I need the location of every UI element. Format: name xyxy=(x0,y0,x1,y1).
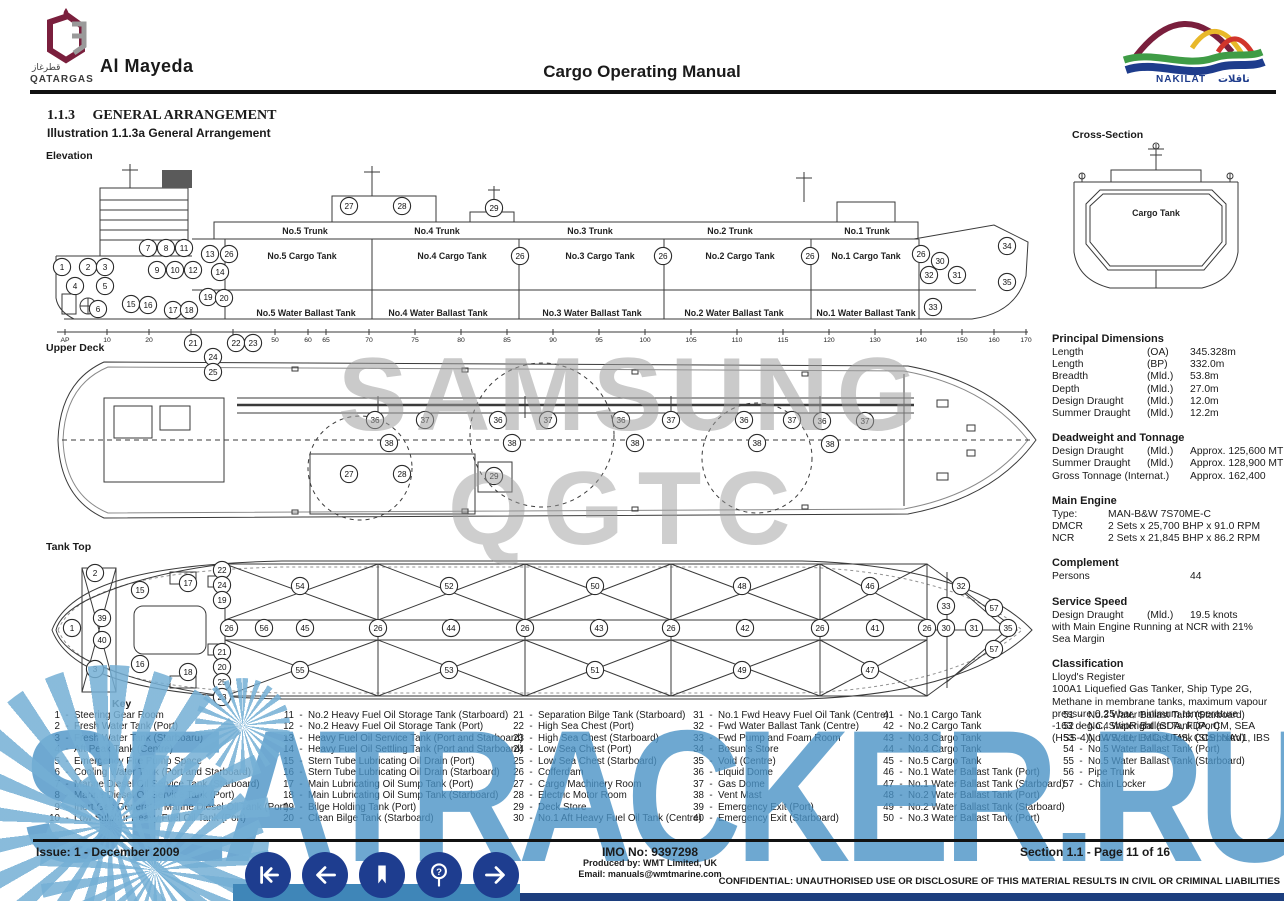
callout-10: 10 xyxy=(166,261,183,278)
key-item-label: Emergency Exit (Starboard) xyxy=(718,813,839,824)
trunk-label: No.4 Trunk xyxy=(414,226,460,236)
key-item-number: 34 xyxy=(686,744,704,755)
key-item-dash: - xyxy=(60,779,74,790)
callout-14: 14 xyxy=(211,263,228,280)
callout-33: 33 xyxy=(937,597,954,614)
key-item: 34-Bosun's Store xyxy=(686,744,889,755)
callout-15: 15 xyxy=(131,581,148,598)
key-item-dash: - xyxy=(704,756,718,767)
spec-cell: Approx. 125,600 MT xyxy=(1190,446,1283,458)
key-item-label: No.2 Cargo Tank xyxy=(908,721,981,732)
svg-text:32: 32 xyxy=(924,271,934,280)
specs-panel: Principal DimensionsLength(OA)345.328mLe… xyxy=(1052,333,1280,757)
bookmark-button[interactable] xyxy=(359,852,405,898)
callout-53: 53 xyxy=(440,661,457,678)
ballast-tank-label: No.1 Water Ballast Tank xyxy=(816,308,915,318)
svg-text:18: 18 xyxy=(184,306,194,315)
key-item-number: 9 xyxy=(42,802,60,813)
callout-13: 13 xyxy=(201,245,218,262)
spec-cell: (OA) xyxy=(1147,347,1190,359)
key-item-number: 47 xyxy=(876,779,894,790)
section-title: GENERAL ARRANGEMENT xyxy=(93,108,277,123)
cross-section-diagram: Cargo Tank xyxy=(1056,140,1256,325)
svg-text:33: 33 xyxy=(941,602,951,611)
callout-19: 19 xyxy=(213,591,230,608)
key-item-number: 17 xyxy=(276,779,294,790)
key-item-number: 36 xyxy=(686,767,704,778)
key-item: 38-Vent Mast xyxy=(686,790,889,801)
svg-text:15: 15 xyxy=(135,586,145,595)
key-item-dash: - xyxy=(60,790,74,801)
svg-text:23: 23 xyxy=(248,339,258,348)
callout-23: 23 xyxy=(213,688,230,705)
svg-text:21: 21 xyxy=(217,648,227,657)
key-item-dash: - xyxy=(60,721,74,732)
key-item: 51-No.3 Water Ballast Tank (Starboard) xyxy=(1056,710,1245,721)
help-button[interactable]: ? xyxy=(416,852,462,898)
spec-note: Methane in membrane tanks, maximum vapou… xyxy=(1052,697,1280,709)
key-item-dash: - xyxy=(704,721,718,732)
svg-text:32: 32 xyxy=(956,582,966,591)
key-item-number: 46 xyxy=(876,767,894,778)
key-item-label: Main Lubricating Oil Sump Tank (Port) xyxy=(308,779,473,790)
svg-text:42: 42 xyxy=(740,624,750,633)
svg-text:26: 26 xyxy=(515,252,525,261)
key-item-number: 23 xyxy=(506,733,524,744)
callout-37: 37 xyxy=(416,411,433,428)
svg-text:54: 54 xyxy=(295,582,305,591)
callout-4: 4 xyxy=(66,277,83,294)
svg-text:47: 47 xyxy=(865,666,875,675)
key-item-label: No.4 Water Ballast Tank (Starboard) xyxy=(1088,733,1245,744)
key-item-label: No.3 Cargo Tank xyxy=(908,733,981,744)
svg-text:28: 28 xyxy=(397,202,407,211)
svg-text:26: 26 xyxy=(373,624,383,633)
key-column: 1-Steering Gear Room2-Fresh Water Tank (… xyxy=(42,710,289,825)
spec-cell: 2 Sets x 25,700 BHP x 91.0 RPM xyxy=(1108,521,1280,533)
key-item-dash: - xyxy=(1074,779,1088,790)
key-item-dash: - xyxy=(524,756,538,767)
key-item-dash: - xyxy=(60,744,74,755)
callout-38: 38 xyxy=(380,434,397,451)
spec-cell: Design Draught xyxy=(1052,610,1147,622)
callout-31: 31 xyxy=(965,619,982,636)
key-item-number: 35 xyxy=(686,756,704,767)
callout-49: 49 xyxy=(733,661,750,678)
svg-text:38: 38 xyxy=(825,440,835,449)
callout-3: 3 xyxy=(96,258,113,275)
cargo-tank-label: No.2 Cargo Tank xyxy=(705,251,774,261)
trunk-label: No.3 Trunk xyxy=(567,226,613,236)
key-column: 31-No.1 Fwd Heavy Fuel Oil Tank (Centre)… xyxy=(686,710,889,825)
svg-text:41: 41 xyxy=(870,624,880,633)
spec-cell: (Mld.) xyxy=(1147,610,1190,622)
key-item-number: 24 xyxy=(506,744,524,755)
key-item: 43-No.3 Cargo Tank xyxy=(876,733,1065,744)
spec-row: Design Draught(Mld.)Approx. 125,600 MT xyxy=(1052,446,1280,458)
svg-text:34: 34 xyxy=(1002,242,1012,251)
key-item-label: Bosun's Store xyxy=(718,744,779,755)
svg-text:57: 57 xyxy=(989,645,999,654)
svg-text:20: 20 xyxy=(219,294,229,303)
elevation-diagram: No.5 TrunkNo.4 TrunkNo.3 TrunkNo.2 Trunk… xyxy=(42,158,1042,344)
svg-text:17: 17 xyxy=(168,306,178,315)
callout-16: 16 xyxy=(139,296,156,313)
key-item-dash: - xyxy=(894,813,908,824)
key-item: 52-No.4 Water Ballast Tank (Port) xyxy=(1056,721,1245,732)
key-item-dash: - xyxy=(704,744,718,755)
callout-27: 27 xyxy=(340,197,357,214)
key-item: 10-Low Sulphur Heavy Fuel Oil Tank (Port… xyxy=(42,813,289,824)
key-item-number: 20 xyxy=(276,813,294,824)
svg-text:51: 51 xyxy=(590,666,600,675)
key-item-dash: - xyxy=(1074,756,1088,767)
callout-6: 6 xyxy=(89,300,106,317)
key-item-number: 7 xyxy=(42,779,60,790)
svg-text:36: 36 xyxy=(739,416,749,425)
cross-section-tank-label: Cargo Tank xyxy=(1132,208,1180,218)
key-item-label: Cooling Water Tank (Port and Starboard) xyxy=(74,767,251,778)
key-item: 14-Heavy Fuel Oil Settling Tank (Port an… xyxy=(276,744,523,755)
svg-text:52: 52 xyxy=(444,582,454,591)
spec-cell: (Mld.) xyxy=(1147,371,1190,383)
svg-text:36: 36 xyxy=(817,417,827,426)
key-item-number: 50 xyxy=(876,813,894,824)
previous-page-button[interactable] xyxy=(302,852,348,898)
svg-text:24: 24 xyxy=(208,353,218,362)
svg-text:48: 48 xyxy=(737,582,747,591)
spec-block: Principal DimensionsLength(OA)345.328mLe… xyxy=(1052,333,1280,420)
spec-cell: 12.2m xyxy=(1190,408,1280,420)
callout-34: 34 xyxy=(998,237,1015,254)
spec-cell: Length xyxy=(1052,359,1147,371)
svg-text:37: 37 xyxy=(787,416,797,425)
imo-number: IMO No: 9397298 xyxy=(560,845,740,859)
svg-text:19: 19 xyxy=(217,596,227,605)
key-item-label: Marine Diesel Oil Service Tank (Starboar… xyxy=(74,779,260,790)
key-item: 49-No.2 Water Ballast Tank (Starboard) xyxy=(876,802,1065,813)
nakilat-wordmark: NAKILAT xyxy=(1156,74,1206,85)
section-page-label: Section 1.1 - Page 11 of 16 xyxy=(1020,845,1278,859)
callout-57: 57 xyxy=(985,640,1002,657)
svg-text:38: 38 xyxy=(507,439,517,448)
callout-30: 30 xyxy=(931,252,948,269)
svg-text:22: 22 xyxy=(231,339,241,348)
callout-5: 5 xyxy=(96,277,113,294)
trunk-label: No.1 Trunk xyxy=(844,226,890,236)
help-icon: ? xyxy=(422,858,456,892)
svg-text:29: 29 xyxy=(489,204,499,213)
key-item-dash: - xyxy=(294,802,308,813)
key-item: 4-Aft Peak Tank (Centre) xyxy=(42,744,289,755)
callout-29: 29 xyxy=(485,199,502,216)
key-item-label: Aft Peak Tank (Centre) xyxy=(74,744,173,755)
callout-27: 27 xyxy=(340,465,357,482)
key-item-dash: - xyxy=(1074,721,1088,732)
spec-cell: 12.0m xyxy=(1190,396,1280,408)
produced-by-line: Produced by: WMT Limited, UK xyxy=(548,858,752,869)
key-item: 54-No.5 Water Ballast Tank (Port) xyxy=(1056,744,1245,755)
callout-9: 9 xyxy=(148,261,165,278)
svg-text:37: 37 xyxy=(543,416,553,425)
svg-text:1: 1 xyxy=(70,624,75,633)
svg-text:27: 27 xyxy=(344,202,354,211)
spec-cell: 44 xyxy=(1190,571,1280,583)
spec-title: Principal Dimensions xyxy=(1052,333,1280,345)
key-item-number: 10 xyxy=(42,813,60,824)
key-item: 17-Main Lubricating Oil Sump Tank (Port) xyxy=(276,779,523,790)
svg-text:26: 26 xyxy=(922,624,932,633)
callout-50: 50 xyxy=(586,577,603,594)
key-item: 27-Cargo Machinery Room xyxy=(506,779,702,790)
spec-cell: (Mld.) xyxy=(1147,408,1190,420)
trunk-label: No.5 Trunk xyxy=(282,226,328,236)
spec-cell: 27.0m xyxy=(1190,384,1280,396)
callout-42: 42 xyxy=(736,619,753,636)
key-item-number: 27 xyxy=(506,779,524,790)
svg-text:14: 14 xyxy=(215,268,225,277)
svg-text:4: 4 xyxy=(73,282,78,291)
key-item-dash: - xyxy=(524,721,538,732)
svg-text:37: 37 xyxy=(860,417,870,426)
svg-text:43: 43 xyxy=(594,624,604,633)
key-item-label: Liquid Dome xyxy=(718,767,773,778)
callout-43: 43 xyxy=(590,619,607,636)
key-item-dash: - xyxy=(704,790,718,801)
key-item-dash: - xyxy=(894,733,908,744)
spec-note: Sea Margin xyxy=(1052,634,1280,646)
callout-2: 2 xyxy=(86,564,103,581)
key-item-dash: - xyxy=(524,779,538,790)
key-item: 56-Pipe Trunk xyxy=(1056,767,1245,778)
key-item: 6-Cooling Water Tank (Port and Starboard… xyxy=(42,767,289,778)
callout-36: 36 xyxy=(366,411,383,428)
nav-toolbar: ? xyxy=(245,852,519,898)
key-item-dash: - xyxy=(894,756,908,767)
tank-top-section-label: Tank Top xyxy=(46,541,91,553)
callout-26: 26 xyxy=(369,619,386,636)
svg-text:38: 38 xyxy=(630,439,640,448)
key-item-number: 54 xyxy=(1056,744,1074,755)
next-page-icon xyxy=(479,858,513,892)
footer-rule xyxy=(33,839,1284,842)
svg-text:44: 44 xyxy=(446,624,456,633)
key-item-label: Gas Dome xyxy=(718,779,765,790)
callout-38: 38 xyxy=(821,435,838,452)
callout-26: 26 xyxy=(912,245,929,262)
key-item-label: No.3 Water Ballast Tank (Port) xyxy=(908,813,1040,824)
spec-cell: (Mld.) xyxy=(1147,396,1190,408)
key-item-number: 53 xyxy=(1056,733,1074,744)
callout-3: 3 xyxy=(86,660,103,677)
svg-text:7: 7 xyxy=(146,244,151,253)
spec-cell: Design Draught xyxy=(1052,446,1147,458)
callout-26: 26 xyxy=(918,619,935,636)
key-item-dash: - xyxy=(1074,767,1088,778)
key-item: 22-High Sea Chest (Port) xyxy=(506,721,702,732)
key-item-dash: - xyxy=(704,733,718,744)
key-item: 7-Marine Diesel Oil Service Tank (Starbo… xyxy=(42,779,289,790)
key-item-label: Cargo Machinery Room xyxy=(538,779,641,790)
key-item-label: Emergency Exit (Port) xyxy=(718,802,814,813)
svg-text:2: 2 xyxy=(93,569,98,578)
callout-20: 20 xyxy=(215,289,232,306)
callout-1: 1 xyxy=(63,619,80,636)
key-item-number: 14 xyxy=(276,744,294,755)
key-item: 47-No.1 Water Ballast Tank (Starboard) xyxy=(876,779,1065,790)
key-item-dash: - xyxy=(294,790,308,801)
callout-52: 52 xyxy=(440,577,457,594)
svg-text:12: 12 xyxy=(188,266,198,275)
spec-row: DMCR2 Sets x 25,700 BHP x 91.0 RPM xyxy=(1052,521,1280,533)
key-item-number: 40 xyxy=(686,813,704,824)
section-heading: 1.1.3 GENERAL ARRANGEMENT xyxy=(47,108,276,124)
spec-row: Length(OA)345.328m xyxy=(1052,347,1280,359)
upper-deck-section-label: Upper Deck xyxy=(46,342,104,354)
spec-cell: MAN-B&W 7S70ME-C xyxy=(1108,509,1280,521)
key-item-dash: - xyxy=(60,802,74,813)
key-item-label: Stern Tube Lubricating Oil Drain (Port) xyxy=(308,756,475,767)
spec-title: Main Engine xyxy=(1052,495,1280,507)
key-item-label: Inert Gas Generator Marine Diesel Oil Ta… xyxy=(74,802,289,813)
key-item-number: 37 xyxy=(686,779,704,790)
spec-cell: (Mld.) xyxy=(1147,458,1190,470)
callout-16: 16 xyxy=(131,655,148,672)
key-item-label: Stern Tube Lubricating Oil Drain (Starbo… xyxy=(308,767,500,778)
callout-22: 22 xyxy=(227,334,244,351)
spec-title: Classification xyxy=(1052,658,1280,670)
key-item-label: Heavy Fuel Oil Service Tank (Port and St… xyxy=(308,733,523,744)
key-item-label: No.2 Water Ballast Tank (Starboard) xyxy=(908,802,1065,813)
spec-block: Main EngineType:MAN-B&W 7S70ME-CDMCR2 Se… xyxy=(1052,495,1280,546)
callout-26: 26 xyxy=(220,619,237,636)
svg-text:35: 35 xyxy=(1002,278,1012,287)
qatargas-wordmark: QATARGAS xyxy=(30,74,94,85)
key-item-number: 32 xyxy=(686,721,704,732)
spec-cell: 332.0m xyxy=(1190,359,1280,371)
callout-26: 26 xyxy=(654,247,671,264)
callout-26: 26 xyxy=(811,619,828,636)
callout-30: 30 xyxy=(937,619,954,636)
key-item-number: 52 xyxy=(1056,721,1074,732)
svg-text:26: 26 xyxy=(520,624,530,633)
key-item: 24-Low Sea Chest (Port) xyxy=(506,744,702,755)
callout-35: 35 xyxy=(999,619,1016,636)
spec-row: NCR2 Sets x 21,845 BHP x 86.2 RPM xyxy=(1052,533,1280,545)
callout-8: 8 xyxy=(157,239,174,256)
key-item: 50-No.3 Water Ballast Tank (Port) xyxy=(876,813,1065,824)
svg-text:1: 1 xyxy=(60,263,65,272)
confidential-notice: CONFIDENTIAL: UNAUTHORISED USE OR DISCLO… xyxy=(719,876,1280,887)
key-item: 42-No.2 Cargo Tank xyxy=(876,721,1065,732)
svg-text:18: 18 xyxy=(183,668,193,677)
spec-title: Service Speed xyxy=(1052,596,1280,608)
callout-26: 26 xyxy=(511,247,528,264)
svg-text:37: 37 xyxy=(666,416,676,425)
first-page-button[interactable] xyxy=(245,852,291,898)
trunk-label: No.2 Trunk xyxy=(707,226,753,236)
key-item-label: Deck Store xyxy=(538,802,586,813)
svg-text:36: 36 xyxy=(370,416,380,425)
callout-48: 48 xyxy=(733,577,750,594)
key-item-number: 15 xyxy=(276,756,294,767)
key-item-dash: - xyxy=(60,813,74,824)
callout-21: 21 xyxy=(184,334,201,351)
spec-cell: (BP) xyxy=(1147,359,1190,371)
svg-text:57: 57 xyxy=(989,604,999,613)
svg-text:29: 29 xyxy=(489,472,499,481)
key-item-label: No.5 Water Ballast Tank (Starboard) xyxy=(1088,756,1245,767)
callout-17: 17 xyxy=(164,301,181,318)
svg-text:8: 8 xyxy=(164,244,169,253)
svg-text:10: 10 xyxy=(170,266,180,275)
svg-text:45: 45 xyxy=(300,624,310,633)
key-item: 29-Deck Store xyxy=(506,802,702,813)
spec-cell: Approx. 162,400 xyxy=(1190,471,1280,483)
key-item: 35-Void (Centre) xyxy=(686,756,889,767)
key-item-dash: - xyxy=(1074,744,1088,755)
spec-cell: (Mld.) xyxy=(1147,446,1190,458)
ballast-tank-label: No.4 Water Ballast Tank xyxy=(388,308,487,318)
cargo-tank-label: No.5 Cargo Tank xyxy=(267,251,336,261)
key-item-number: 2 xyxy=(42,721,60,732)
key-item-dash: - xyxy=(894,744,908,755)
callout-55: 55 xyxy=(291,661,308,678)
callout-57: 57 xyxy=(985,599,1002,616)
svg-text:38: 38 xyxy=(384,439,394,448)
key-item-dash: - xyxy=(524,733,538,744)
ballast-tank-label: No.2 Water Ballast Tank xyxy=(684,308,783,318)
svg-text:28: 28 xyxy=(397,470,407,479)
key-item: 18-Main Lubricating Oil Sump Tank (Starb… xyxy=(276,790,523,801)
key-item-label: High Sea Chest (Port) xyxy=(538,721,634,732)
svg-text:40: 40 xyxy=(97,636,107,645)
callout-26: 26 xyxy=(801,247,818,264)
svg-text:3: 3 xyxy=(93,665,98,674)
spec-cell: Persons xyxy=(1052,571,1147,583)
callout-17: 17 xyxy=(179,574,196,591)
spec-row: Design Draught(Mld.)12.0m xyxy=(1052,396,1280,408)
svg-text:53: 53 xyxy=(444,666,454,675)
svg-text:11: 11 xyxy=(180,244,189,253)
callout-47: 47 xyxy=(861,661,878,678)
key-item-label: Vent Mast xyxy=(718,790,762,801)
svg-text:49: 49 xyxy=(737,666,747,675)
spec-cell xyxy=(1147,471,1190,483)
issue-label: Issue: 1 - December 2009 xyxy=(36,845,179,859)
key-item-dash: - xyxy=(294,756,308,767)
key-item: 40-Emergency Exit (Starboard) xyxy=(686,813,889,824)
callout-31: 31 xyxy=(948,266,965,283)
key-item: 45-No.5 Cargo Tank xyxy=(876,756,1065,767)
key-item-number: 33 xyxy=(686,733,704,744)
svg-text:35: 35 xyxy=(1003,624,1013,633)
key-item-number: 19 xyxy=(276,802,294,813)
spec-row: Length(BP)332.0m xyxy=(1052,359,1280,371)
callout-44: 44 xyxy=(442,619,459,636)
callout-12: 12 xyxy=(184,261,201,278)
svg-text:38: 38 xyxy=(752,439,762,448)
key-item-dash: - xyxy=(894,802,908,813)
manual-page: قطرغاز QATARGAS Al Mayeda Cargo Operatin… xyxy=(0,0,1284,901)
callout-35: 35 xyxy=(998,273,1015,290)
callout-37: 37 xyxy=(783,411,800,428)
next-page-button[interactable] xyxy=(473,852,519,898)
spec-block: Deadweight and TonnageDesign Draught(Mld… xyxy=(1052,432,1280,483)
key-item-number: 26 xyxy=(506,767,524,778)
callout-18: 18 xyxy=(179,663,196,680)
callout-26: 26 xyxy=(662,619,679,636)
